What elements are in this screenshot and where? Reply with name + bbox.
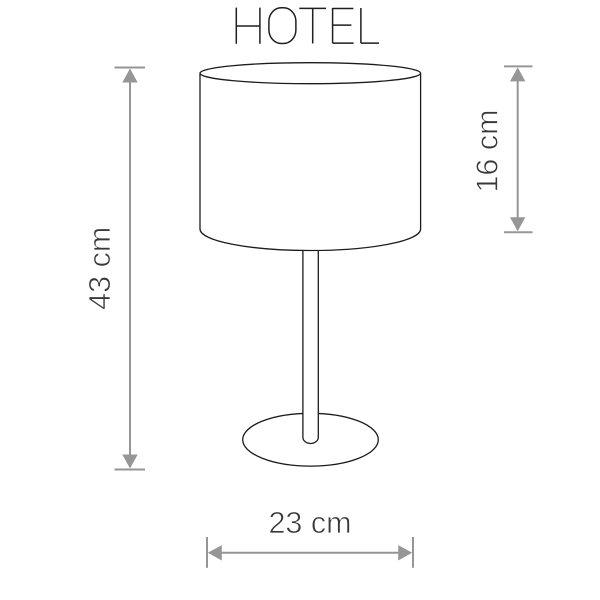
svg-text:16 cm: 16 cm <box>471 109 505 192</box>
svg-text:43 cm: 43 cm <box>83 227 117 310</box>
svg-text:23 cm: 23 cm <box>268 506 351 540</box>
